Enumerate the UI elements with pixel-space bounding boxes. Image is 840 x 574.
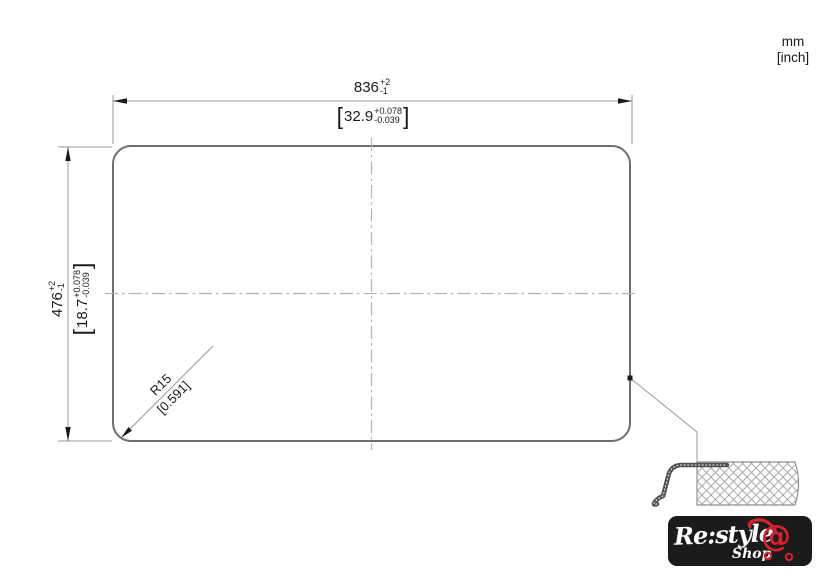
width-dimension-mm: 836+2-1 bbox=[354, 78, 390, 96]
detail-leader bbox=[628, 376, 698, 465]
width-dimension-inch: [32.9+0.078-0.039] bbox=[336, 106, 411, 126]
width-tolerance-inch: +0.078-0.039 bbox=[374, 107, 402, 125]
width-value-mm: 836 bbox=[354, 80, 379, 95]
width-value-inch: 32.9 bbox=[344, 109, 373, 124]
width-tolerance-mm: +2-1 bbox=[380, 78, 390, 96]
technical-drawing-canvas bbox=[0, 0, 840, 574]
cart-wheel-right-icon bbox=[786, 554, 792, 560]
height-tolerance-inch: +0.078-0.039 bbox=[73, 270, 91, 298]
units-note: mm [inch] bbox=[762, 34, 824, 66]
logo-brand-text: Re:style bbox=[674, 521, 774, 548]
height-dimension-inch: [18.7+0.078-0.039] bbox=[72, 262, 92, 337]
height-value-mm: 476 bbox=[50, 292, 65, 317]
height-tolerance-mm: +2-1 bbox=[48, 281, 66, 291]
height-value-inch: 18.7 bbox=[75, 299, 90, 328]
cart-at-symbol: @ bbox=[761, 522, 791, 552]
units-imperial: [inch] bbox=[762, 50, 824, 66]
units-metric: mm bbox=[762, 34, 824, 50]
countertop-section bbox=[697, 462, 799, 505]
height-dimension-mm: 476+2-1 bbox=[48, 281, 66, 317]
restyle-shop-logo: Re:style Shop @ bbox=[668, 516, 812, 566]
